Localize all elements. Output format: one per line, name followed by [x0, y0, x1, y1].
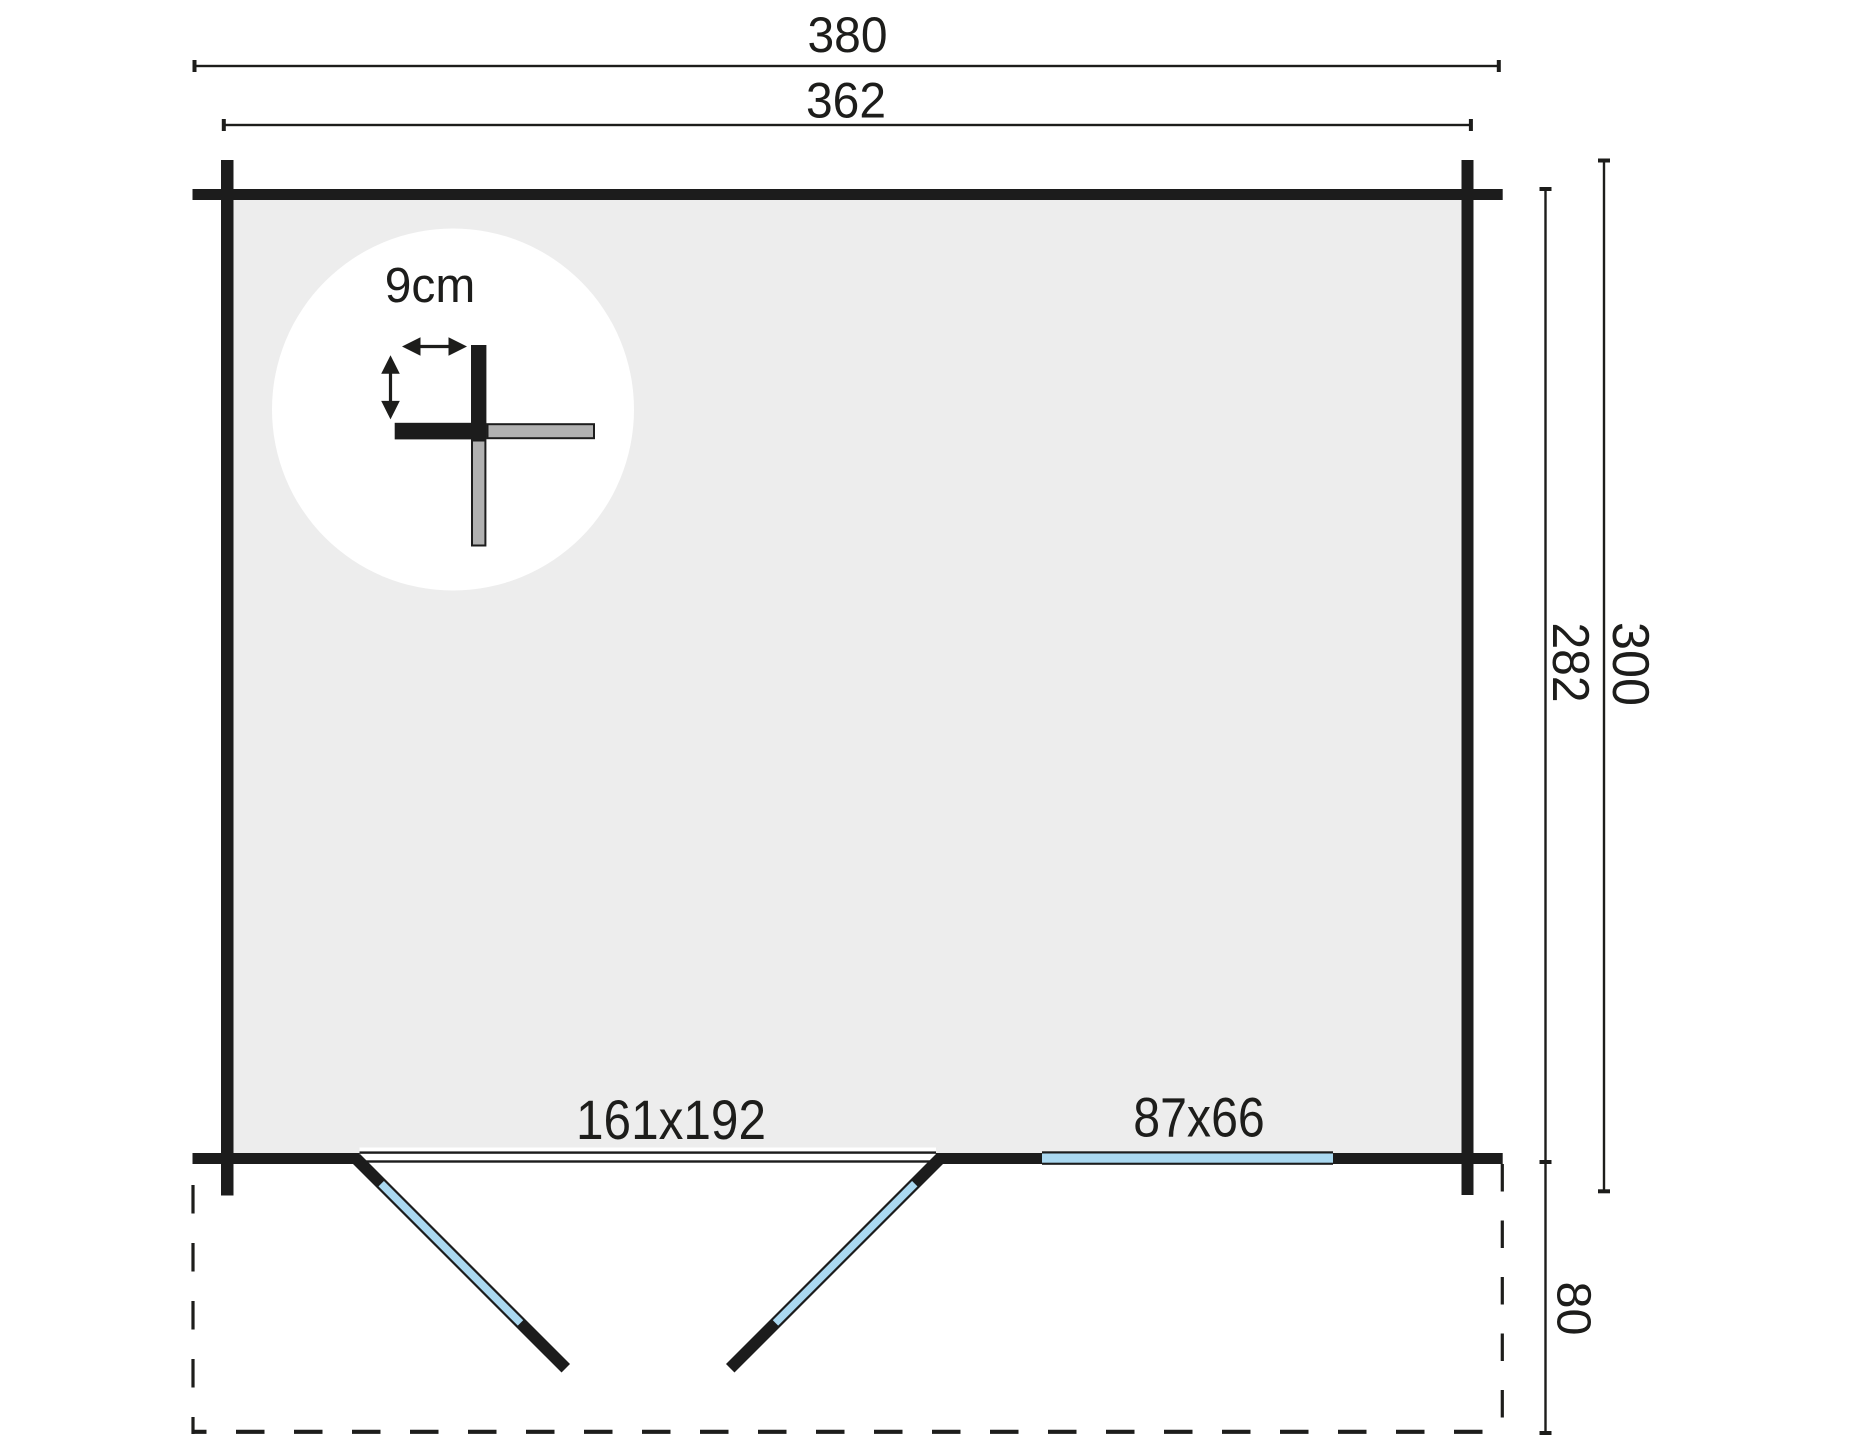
svg-text:362: 362: [806, 73, 886, 129]
svg-text:80: 80: [1547, 1282, 1600, 1336]
svg-text:9cm: 9cm: [385, 259, 476, 313]
svg-text:300: 300: [1601, 622, 1659, 706]
svg-text:87x66: 87x66: [1133, 1086, 1265, 1149]
svg-text:282: 282: [1541, 623, 1599, 703]
svg-text:380: 380: [808, 7, 888, 63]
svg-text:161x192: 161x192: [576, 1088, 766, 1151]
